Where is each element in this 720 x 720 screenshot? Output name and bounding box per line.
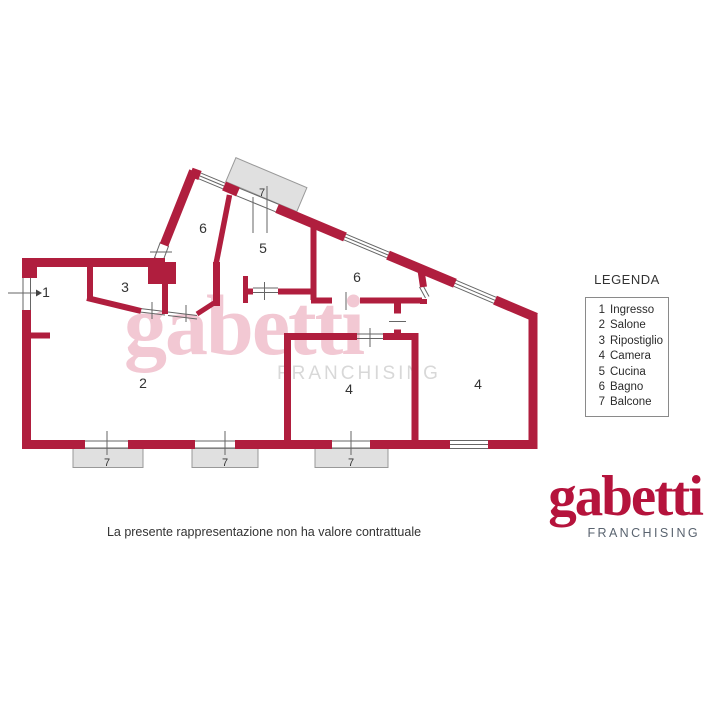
- legend-item-number: 6: [596, 380, 605, 395]
- gabetti-logo: gabetti FRANCHISING: [498, 468, 702, 540]
- balcony-label-bottom-2: 7: [222, 457, 228, 469]
- room-label-salone: 2: [139, 375, 147, 391]
- window-diagonal-1: [199, 173, 225, 189]
- legend-item-bagno: 6Bagno: [596, 380, 666, 395]
- legend-item-number: 4: [596, 349, 605, 364]
- balcony-label-top: 7: [259, 187, 265, 199]
- legend-item-label: Camera: [610, 350, 651, 362]
- window-diagonal-2: [344, 234, 389, 258]
- balcony-label-bottom-1: 7: [104, 457, 110, 469]
- balcony-label-bottom-3: 7: [348, 457, 354, 469]
- legend-item-camera: 4Camera: [596, 349, 666, 364]
- wall-corner-block: [22, 258, 37, 278]
- room-label-cucina: 5: [259, 240, 267, 256]
- gabetti-logo-franchising: FRANCHISING: [498, 526, 702, 540]
- room-label-bagno-1: 6: [199, 220, 207, 236]
- room-label-camera-2: 4: [474, 376, 482, 392]
- room-label-ripostiglio: 3: [121, 279, 129, 295]
- legend-item-label: Ripostiglio: [610, 335, 663, 347]
- wall-bath1-right: [216, 195, 230, 264]
- balcony-top: [226, 158, 307, 212]
- window-bottom-right: [450, 441, 488, 449]
- window-diagonal-3: [454, 280, 496, 303]
- legend-item-balcone: 7Balcone: [596, 395, 666, 410]
- floorplan-page: gabetti FRANCHISING: [0, 0, 720, 720]
- legend-item-number: 7: [596, 395, 605, 410]
- gabetti-logo-wordmark: gabetti: [498, 468, 702, 525]
- legend-item-salone: 2Salone: [596, 318, 666, 333]
- legend: LEGENDA 1Ingresso 2Salone 3Ripostiglio 4…: [585, 272, 669, 417]
- room-label-bagno-2: 6: [353, 269, 361, 285]
- legend-item-label: Balcone: [610, 396, 652, 408]
- legend-item-number: 2: [596, 318, 605, 333]
- room-label-ingresso: 1: [42, 284, 50, 300]
- legend-item-ingresso: 1Ingresso: [596, 303, 666, 318]
- legend-item-label: Bagno: [610, 381, 643, 393]
- legend-item-label: Cucina: [610, 366, 646, 378]
- legend-item-label: Ingresso: [610, 304, 654, 316]
- legend-item-number: 5: [596, 365, 605, 380]
- disclaimer-text: La presente rappresentazione non ha valo…: [64, 525, 464, 539]
- legend-item-label: Salone: [610, 319, 646, 331]
- entrance-arrow-head: [36, 290, 42, 297]
- wall-diagonal-left: [155, 171, 194, 269]
- legend-box: 1Ingresso 2Salone 3Ripostiglio 4Camera 5…: [585, 297, 669, 417]
- room-label-camera-1: 4: [345, 381, 353, 397]
- entrance-door-frame: [23, 278, 31, 310]
- legend-item-cucina: 5Cucina: [596, 365, 666, 380]
- legend-title: LEGENDA: [585, 272, 669, 287]
- legend-item-number: 3: [596, 334, 605, 349]
- legend-item-number: 1: [596, 303, 605, 318]
- legend-item-ripostiglio: 3Ripostiglio: [596, 334, 666, 349]
